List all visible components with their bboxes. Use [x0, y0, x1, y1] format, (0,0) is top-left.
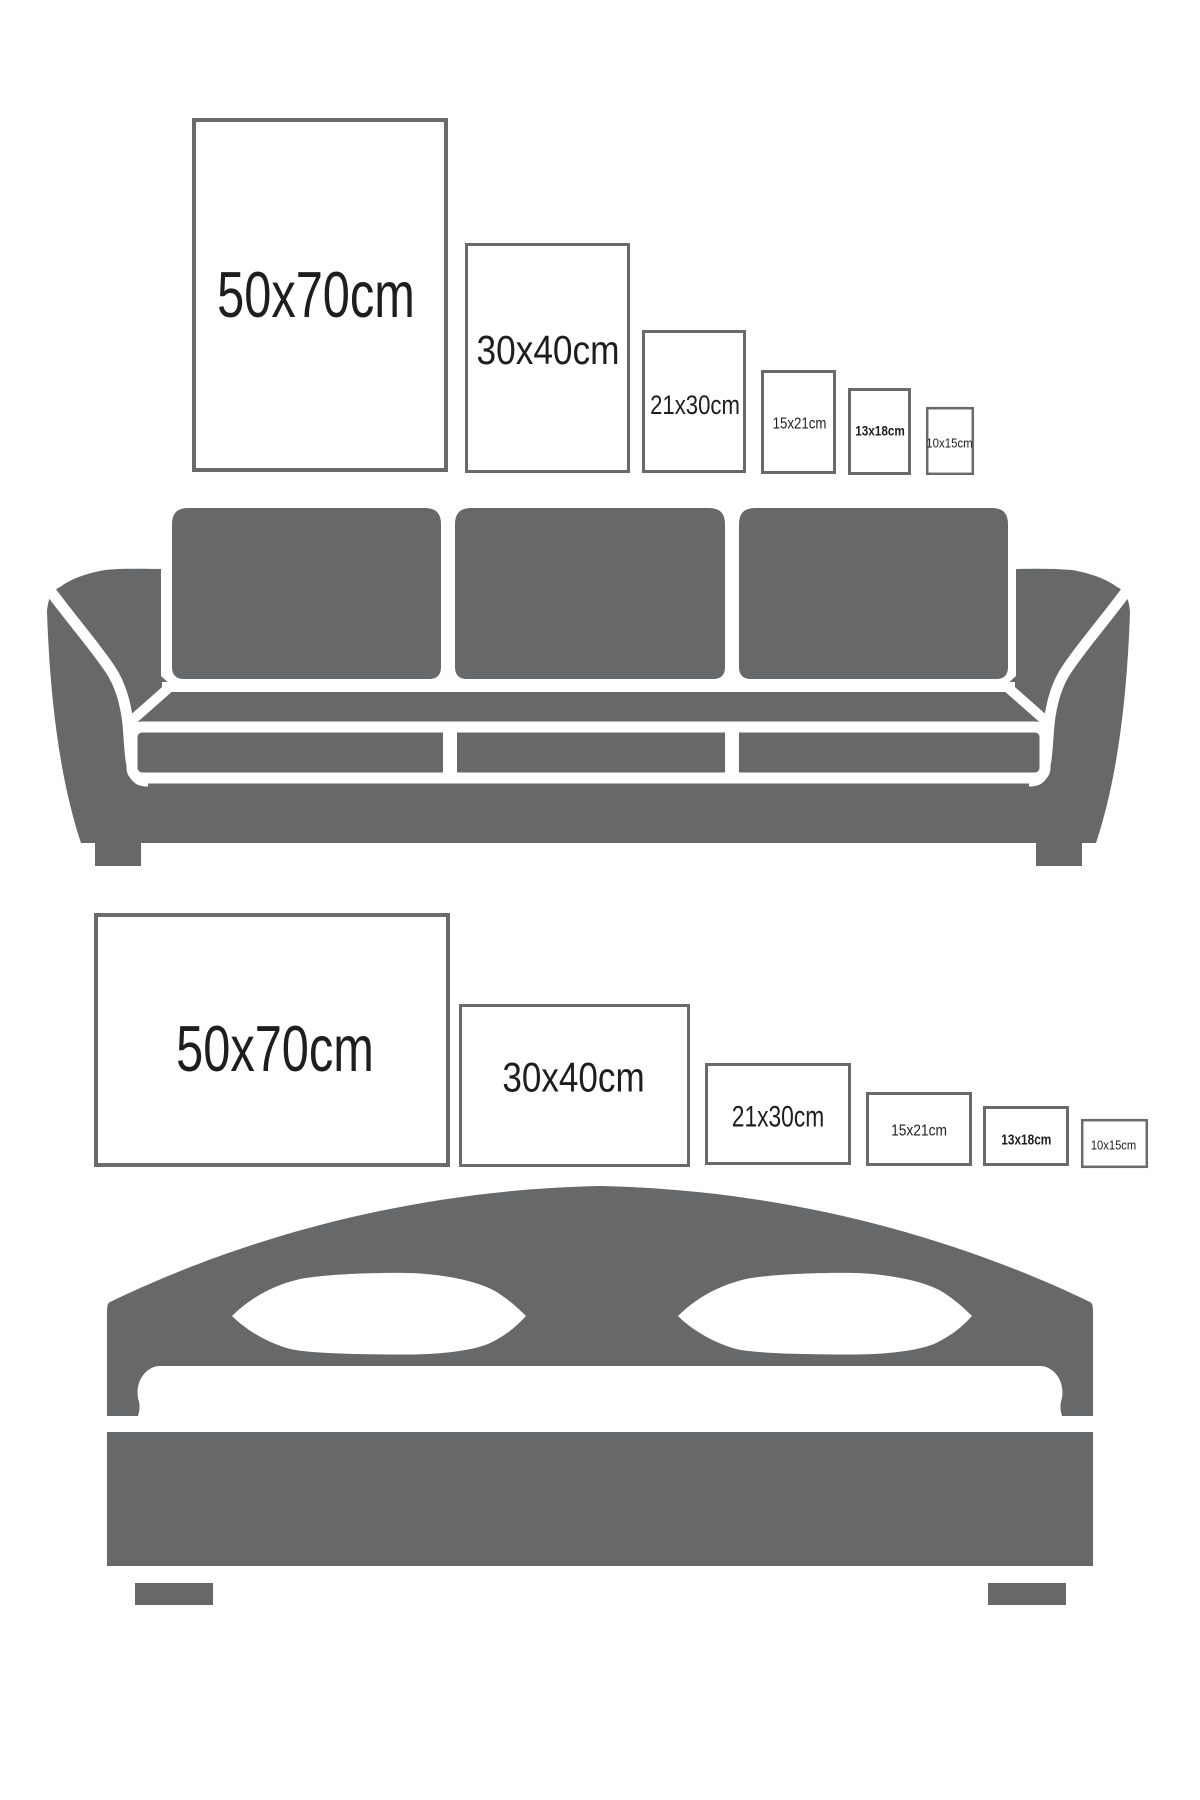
svg-text:13x18cm: 13x18cm: [855, 423, 905, 439]
svg-text:21x30cm: 21x30cm: [650, 391, 740, 421]
svg-text:10x15cm: 10x15cm: [926, 436, 972, 451]
svg-text:30x40cm: 30x40cm: [502, 1055, 644, 1102]
svg-text:30x40cm: 30x40cm: [476, 328, 619, 374]
svg-text:50x70cm: 50x70cm: [176, 1013, 374, 1085]
svg-text:10x15cm: 10x15cm: [1091, 1138, 1136, 1153]
svg-text:15x21cm: 15x21cm: [891, 1122, 947, 1140]
svg-text:13x18cm: 13x18cm: [1001, 1131, 1051, 1148]
svg-text:50x70cm: 50x70cm: [217, 259, 415, 331]
svg-text:21x30cm: 21x30cm: [732, 1099, 824, 1133]
svg-text:15x21cm: 15x21cm: [773, 415, 827, 432]
